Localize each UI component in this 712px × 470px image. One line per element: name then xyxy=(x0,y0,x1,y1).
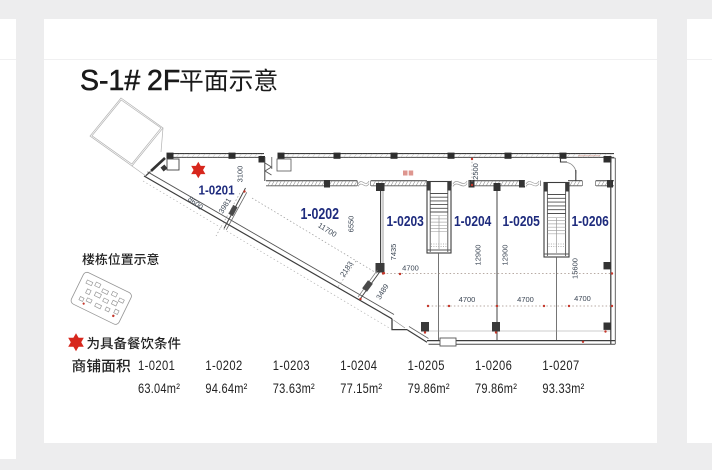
svg-text:1-0203: 1-0203 xyxy=(387,213,425,230)
svg-text:15600: 15600 xyxy=(571,258,580,279)
svg-text:1-0203: 1-0203 xyxy=(273,358,310,373)
svg-text:12900: 12900 xyxy=(501,245,510,266)
svg-text:94.64m²: 94.64m² xyxy=(205,381,247,396)
svg-text:3100: 3100 xyxy=(236,166,245,183)
svg-text:79.86m²: 79.86m² xyxy=(475,381,517,396)
svg-text:11700: 11700 xyxy=(316,221,338,239)
svg-text:2500: 2500 xyxy=(471,163,480,180)
svg-text:1-0204: 1-0204 xyxy=(340,358,377,373)
svg-text:1-0205: 1-0205 xyxy=(408,358,445,373)
svg-text:4700: 4700 xyxy=(574,294,591,303)
svg-text:4700: 4700 xyxy=(517,295,534,304)
svg-text:4700: 4700 xyxy=(402,264,419,273)
svg-text:S-1#: S-1# xyxy=(80,65,140,97)
svg-text:77.15m²: 77.15m² xyxy=(340,381,382,396)
svg-text:7435: 7435 xyxy=(389,244,398,261)
svg-text:93.33m²: 93.33m² xyxy=(542,381,584,396)
svg-text:79.86m²: 79.86m² xyxy=(408,381,450,396)
svg-text:1-0201: 1-0201 xyxy=(138,358,175,373)
svg-text:1-0206: 1-0206 xyxy=(475,358,512,373)
svg-text:12900: 12900 xyxy=(474,245,483,266)
svg-text:63.04m²: 63.04m² xyxy=(138,381,180,396)
svg-text:4700: 4700 xyxy=(459,295,476,304)
svg-text:6550: 6550 xyxy=(347,216,356,233)
svg-text:1-0201: 1-0201 xyxy=(199,183,235,198)
svg-text:1-0202: 1-0202 xyxy=(301,205,340,223)
svg-text:3489: 3489 xyxy=(374,282,390,301)
svg-text:2183: 2183 xyxy=(338,260,355,279)
svg-text:1-0207: 1-0207 xyxy=(542,358,579,373)
svg-text:1-0206: 1-0206 xyxy=(572,213,610,230)
svg-text:73.63m²: 73.63m² xyxy=(273,381,315,396)
svg-text:1-0202: 1-0202 xyxy=(205,358,242,373)
svg-text:1-0204: 1-0204 xyxy=(454,213,492,230)
svg-text:1-0205: 1-0205 xyxy=(503,213,541,230)
svg-text:2F: 2F xyxy=(147,65,180,97)
